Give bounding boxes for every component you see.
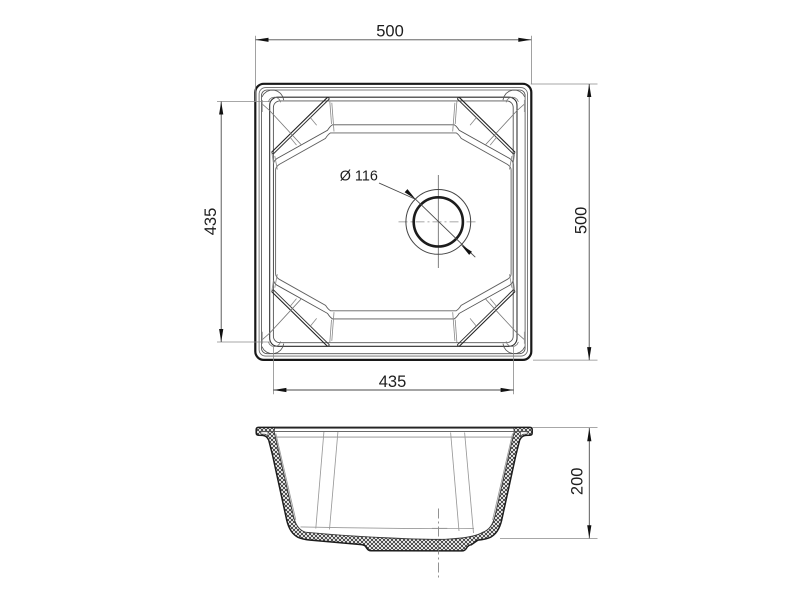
svg-text:500: 500 — [572, 207, 590, 235]
svg-text:Ø 116: Ø 116 — [340, 169, 378, 185]
svg-text:435: 435 — [202, 208, 220, 236]
svg-text:200: 200 — [568, 468, 586, 496]
svg-text:500: 500 — [376, 23, 404, 41]
svg-text:435: 435 — [379, 373, 407, 391]
